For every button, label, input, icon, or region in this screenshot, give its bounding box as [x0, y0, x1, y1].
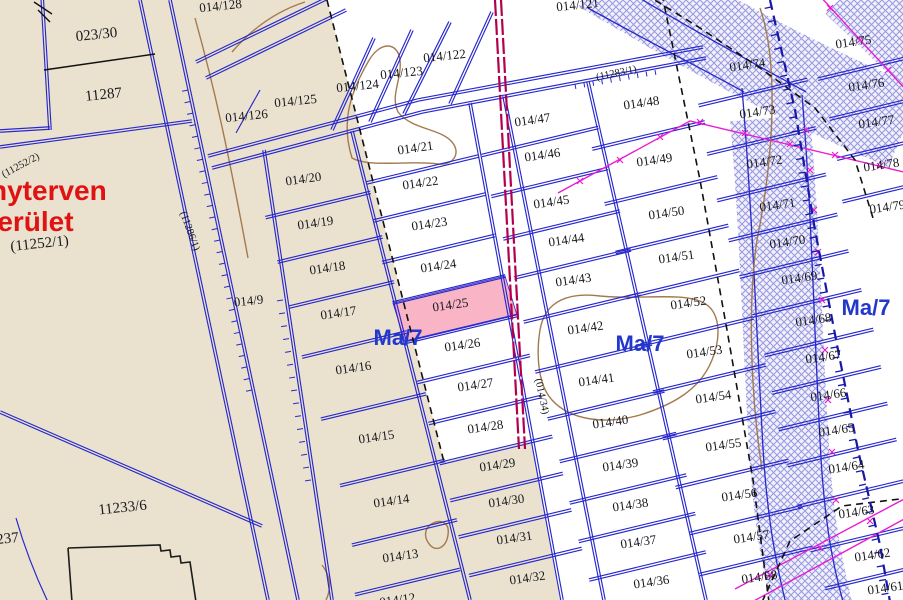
- zone-code-label: Ma/7: [842, 295, 891, 320]
- cadastral-map: 023/3011287(11252/1)11233/6237014/128014…: [0, 0, 903, 600]
- parcel-label: 237: [0, 530, 20, 548]
- zone-code-label: Ma/7: [374, 325, 423, 350]
- parcel-label: 014/9: [233, 292, 264, 310]
- zone-code-label: Ma/7: [616, 331, 665, 356]
- plan-area-red-label: terület: [0, 206, 74, 237]
- plan-area-red-label: nyterven: [0, 175, 107, 206]
- cadastral-map-canvas[interactable]: 023/3011287(11252/1)11233/6237014/128014…: [0, 0, 903, 600]
